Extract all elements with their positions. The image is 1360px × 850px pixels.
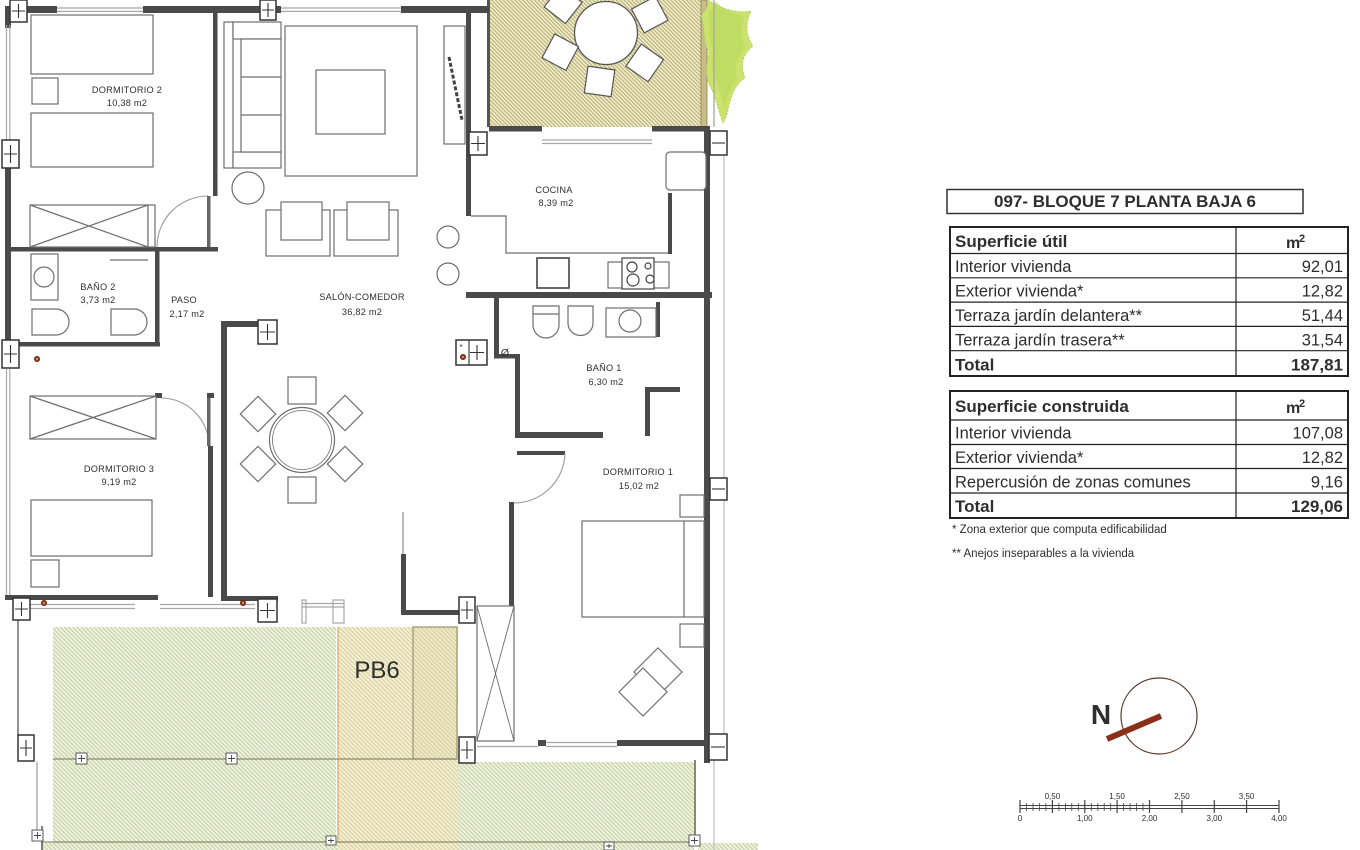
svg-text:129,06: 129,06 — [1291, 497, 1343, 516]
svg-text:2,00: 2,00 — [1142, 814, 1158, 823]
svg-text:2,17 m2: 2,17 m2 — [170, 309, 205, 319]
svg-text:BAÑO 1: BAÑO 1 — [586, 363, 621, 373]
svg-text:9,19 m2: 9,19 m2 — [102, 477, 137, 487]
svg-text:8,39 m2: 8,39 m2 — [539, 198, 574, 208]
svg-text:097- BLOQUE 7 PLANTA BAJA 6: 097- BLOQUE 7 PLANTA BAJA 6 — [994, 192, 1256, 211]
svg-text:3,00: 3,00 — [1207, 814, 1223, 823]
svg-text:3,50: 3,50 — [1239, 792, 1255, 801]
svg-text:Total: Total — [955, 497, 994, 516]
svg-text:0: 0 — [1018, 814, 1023, 823]
svg-text:Ø: Ø — [501, 347, 509, 359]
svg-text:10,38 m2: 10,38 m2 — [107, 98, 147, 108]
svg-text:Interior vivienda: Interior vivienda — [955, 425, 1072, 443]
svg-text:Total: Total — [955, 356, 994, 375]
svg-text:1,50: 1,50 — [1109, 792, 1125, 801]
svg-text:Interior vivienda: Interior vivienda — [955, 258, 1072, 276]
svg-text:187,81: 187,81 — [1291, 356, 1343, 375]
svg-text:Exterior vivienda*: Exterior vivienda* — [955, 449, 1084, 467]
svg-text:* Zona exterior que computa ed: * Zona exterior que computa edificabilid… — [952, 524, 1167, 536]
svg-text:*: * — [459, 343, 462, 352]
svg-text:51,44: 51,44 — [1302, 307, 1343, 325]
svg-text:107,08: 107,08 — [1293, 425, 1343, 443]
svg-text:Exterior vivienda*: Exterior vivienda* — [955, 283, 1084, 301]
svg-text:2: 2 — [1299, 398, 1305, 410]
svg-text:DORMITORIO 3: DORMITORIO 3 — [84, 464, 154, 474]
svg-text:31,54: 31,54 — [1302, 332, 1343, 350]
svg-text:36,82 m2: 36,82 m2 — [342, 307, 382, 317]
svg-text:92,01: 92,01 — [1302, 258, 1343, 276]
svg-text:0,50: 0,50 — [1045, 792, 1061, 801]
svg-text:N: N — [1091, 699, 1111, 730]
svg-text:15,02 m2: 15,02 m2 — [619, 481, 659, 491]
svg-text:1,00: 1,00 — [1077, 814, 1093, 823]
svg-text:Superficie construida: Superficie construida — [955, 397, 1129, 416]
svg-text:PB6: PB6 — [354, 657, 399, 684]
svg-text:Terraza jardín delantera**: Terraza jardín delantera** — [955, 307, 1143, 325]
svg-text:COCINA: COCINA — [535, 185, 573, 195]
svg-text:Superficie útil: Superficie útil — [955, 232, 1067, 251]
svg-text:Repercusión de zonas comunes: Repercusión de zonas comunes — [955, 474, 1191, 492]
svg-text:4,00: 4,00 — [1271, 814, 1287, 823]
svg-text:Terraza jardín trasera**: Terraza jardín trasera** — [955, 332, 1125, 350]
svg-text:2: 2 — [1299, 233, 1305, 245]
svg-text:SALÓN-COMEDOR: SALÓN-COMEDOR — [319, 292, 405, 302]
svg-text:DORMITORIO 1: DORMITORIO 1 — [603, 467, 673, 477]
svg-text:2,50: 2,50 — [1174, 792, 1190, 801]
svg-text:12,82: 12,82 — [1302, 449, 1343, 467]
svg-text:PASO: PASO — [171, 295, 197, 305]
svg-text:6,30 m2: 6,30 m2 — [589, 377, 624, 387]
svg-text:** Anejos inseparables a la vi: ** Anejos inseparables a la vivienda — [952, 548, 1135, 560]
svg-text:DORMITORIO 2: DORMITORIO 2 — [92, 85, 162, 95]
svg-text:9,16: 9,16 — [1311, 474, 1343, 492]
svg-text:12,82: 12,82 — [1302, 283, 1343, 301]
svg-text:BAÑO 2: BAÑO 2 — [80, 282, 115, 292]
svg-text:3,73 m2: 3,73 m2 — [81, 295, 116, 305]
